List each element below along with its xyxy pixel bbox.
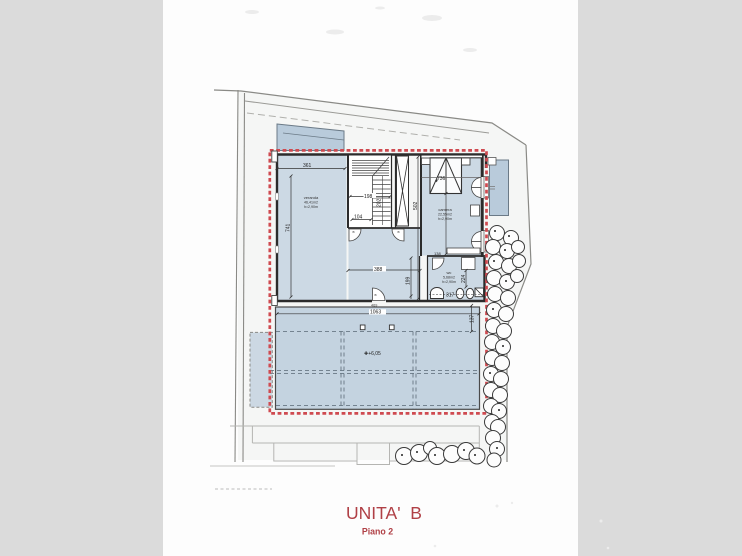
svg-text:361: 361 [303, 163, 312, 169]
svg-text:469: 469 [371, 304, 377, 308]
svg-text:198: 198 [364, 194, 373, 200]
svg-text:wc: wc [447, 270, 452, 275]
svg-text:736: 736 [437, 176, 446, 182]
svg-text:199: 199 [406, 276, 412, 285]
svg-text:IB: IB [352, 230, 355, 234]
svg-text:224: 224 [461, 274, 467, 283]
svg-text:5,68m2: 5,68m2 [443, 276, 455, 280]
svg-text:22,55m2: 22,55m2 [438, 213, 452, 217]
svg-text:317: 317 [446, 293, 455, 299]
svg-text:h=2,90m: h=2,90m [442, 280, 456, 284]
svg-text:741: 741 [286, 223, 292, 232]
svg-text:502: 502 [413, 201, 419, 210]
svg-text:46,41m2: 46,41m2 [304, 201, 318, 205]
svg-text:veranda: veranda [304, 195, 319, 200]
svg-text:1063: 1063 [370, 309, 381, 315]
svg-text:✚+6,05: ✚+6,05 [364, 351, 381, 357]
svg-text:IB: IB [374, 293, 377, 297]
svg-text:UNITA' B: UNITA' B [346, 503, 422, 523]
svg-text:388: 388 [374, 267, 383, 273]
svg-text:camera: camera [438, 207, 452, 212]
svg-text:138: 138 [434, 251, 441, 256]
svg-text:104: 104 [354, 215, 363, 221]
svg-text:IB: IB [397, 230, 400, 234]
svg-text:h=2,90m: h=2,90m [304, 205, 318, 209]
svg-text:202: 202 [377, 198, 383, 207]
svg-text:137: 137 [470, 314, 476, 323]
svg-text:h=2,90m: h=2,90m [438, 217, 452, 221]
svg-text:Piano 2: Piano 2 [362, 526, 393, 536]
